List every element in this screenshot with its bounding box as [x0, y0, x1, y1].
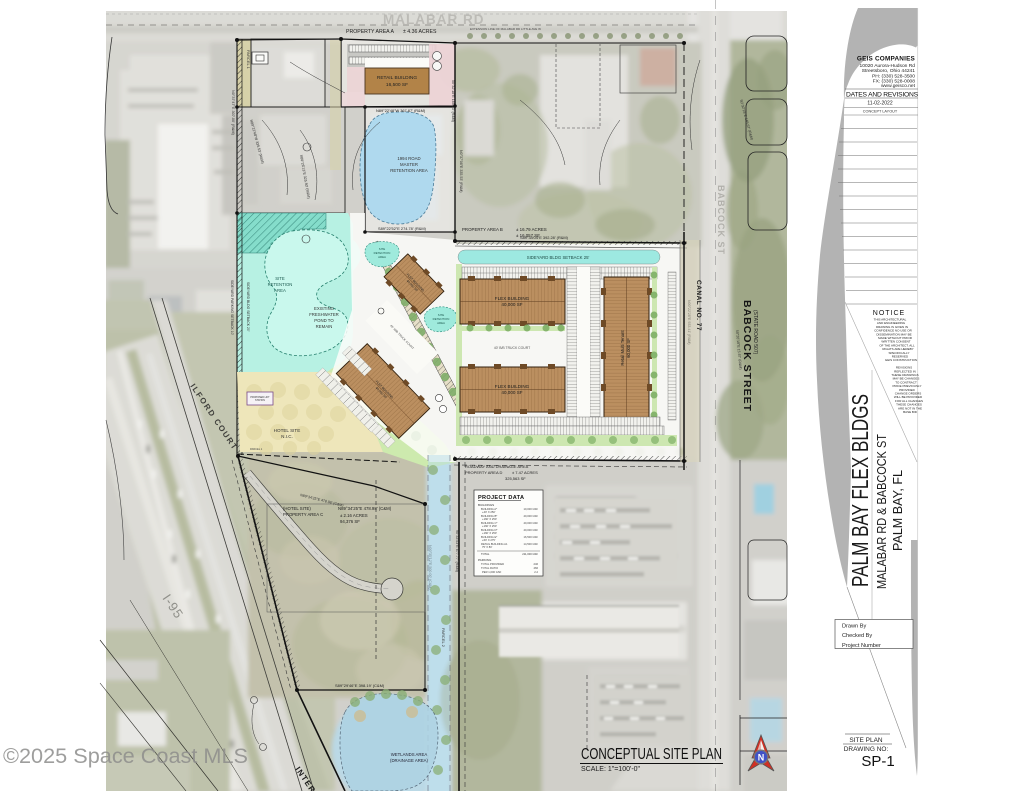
svg-text:SP-1: SP-1: [861, 753, 894, 770]
svg-text:PARCEL 1: PARCEL 1: [250, 447, 263, 451]
svg-text:RETAIL BUILDING: RETAIL BUILDING: [377, 75, 418, 81]
svg-text:HOTEL SITE: HOTEL SITE: [274, 428, 301, 433]
svg-text:40,000 GSF: 40,000 GSF: [524, 521, 539, 525]
svg-text:MALABAR RD & BABCOCK ST: MALABAR RD & BABCOCK ST: [874, 434, 889, 589]
svg-text:40,000 SF: 40,000 SF: [501, 390, 522, 395]
svg-text:± 16.79 ACRES: ± 16.79 ACRES: [516, 227, 547, 232]
svg-text:11-02-2022: 11-02-2022: [867, 101, 892, 107]
svg-text:Checked By: Checked By: [842, 633, 872, 639]
svg-text:+160' X 250': +160' X 250': [482, 517, 497, 521]
svg-text:SITE PLAN: SITE PLAN: [849, 737, 883, 744]
svg-text:PROPERTY AREA D: PROPERTY AREA D: [465, 470, 503, 475]
svg-text:BABCOCK STREET: BABCOCK STREET: [741, 300, 753, 412]
svg-text:CONCEPT LAYOUT: CONCEPT LAYOUT: [863, 110, 898, 114]
svg-text:94,376 SF: 94,376 SF: [340, 519, 360, 524]
svg-text:BABCOCK ST: BABCOCK ST: [716, 185, 726, 255]
svg-text:SCALE: 1"=100'-0": SCALE: 1"=100'-0": [581, 766, 641, 773]
svg-text:MASTER: MASTER: [400, 162, 418, 167]
svg-text:16,500 GSF: 16,500 GSF: [524, 535, 539, 539]
svg-text:CONCEPTUAL SITE PLAN: CONCEPTUAL SITE PLAN: [581, 746, 722, 763]
svg-text:60,000 SF: 60,000 SF: [626, 338, 631, 358]
svg-text:+60' X 275': +60' X 275': [482, 538, 496, 542]
svg-text:TOTAL RATIO: TOTAL RATIO: [481, 566, 498, 570]
svg-text:± 2.16 ACRES: ± 2.16 ACRES: [340, 513, 368, 518]
svg-text:90°33'53"E 677.77' (R&M): 90°33'53"E 677.77' (R&M): [455, 530, 459, 572]
svg-text:PARCEL 1: PARCEL 1: [246, 50, 251, 70]
svg-text:± 4.36 ACRES: ± 4.36 ACRES: [403, 29, 437, 35]
svg-text:PALM BAY FLEX BLDGS: PALM BAY FLEX BLDGS: [847, 394, 873, 587]
svg-text:N.I.C.: N.I.C.: [281, 434, 293, 439]
svg-text:246: 246: [534, 562, 539, 566]
svg-text:CANAL NO. 77: CANAL NO. 77: [695, 280, 702, 331]
svg-text:DATES AND REVISIONS: DATES AND REVISIONS: [846, 92, 919, 99]
svg-text:14,500 GSF: 14,500 GSF: [524, 542, 539, 546]
svg-text:BUILDINGS: BUILDINGS: [478, 503, 494, 507]
svg-text:AREA: AREA: [378, 255, 386, 259]
svg-text:REMAIN: REMAIN: [316, 324, 333, 329]
svg-text:40,000 SF: 40,000 SF: [501, 302, 522, 307]
svg-text:(STATE ROAD 507): (STATE ROAD 507): [752, 310, 758, 355]
svg-text:325,563 SF: 325,563 SF: [505, 476, 526, 481]
svg-text:(HOTEL SITE): (HOTEL SITE): [283, 506, 311, 511]
svg-text:N: N: [758, 753, 765, 763]
svg-text:N89°34'25"E 478.98' (C&M): N89°34'25"E 478.98' (C&M): [338, 506, 392, 511]
svg-text:Retail Multi Tenant: Retail Multi Tenant: [620, 330, 625, 366]
svg-text:NOTICE: NOTICE: [873, 310, 905, 317]
svg-text:N89°22'48"W 367.87' (R&M): N89°22'48"W 367.87' (R&M): [376, 108, 426, 113]
svg-text:RETENTION: RETENTION: [268, 282, 293, 287]
svg-text:POND TO: POND TO: [314, 318, 334, 323]
svg-text:FLEX BUILDING: FLEX BUILDING: [495, 384, 530, 389]
svg-text:PROPERTY AREA A: PROPERTY AREA A: [346, 29, 394, 35]
svg-text:TOTAL PROVIDED: TOTAL PROVIDED: [481, 562, 504, 566]
svg-text:Drawn By: Drawn By: [842, 624, 866, 630]
svg-text:SIDEYARD BLDG SETBACK 25': SIDEYARD BLDG SETBACK 25': [527, 255, 590, 260]
svg-text:RETENTION AREA: RETENTION AREA: [390, 168, 428, 173]
svg-text:S89°29'46"E 398.19' (C&M): S89°29'46"E 398.19' (C&M): [335, 683, 385, 688]
svg-text:SIDEYARD BLDG SETBACK 20': SIDEYARD BLDG SETBACK 20': [246, 282, 250, 332]
svg-text:+40' X 250': +40' X 250': [482, 510, 496, 514]
svg-text:N0°37'08"E 335.53' (R&M): N0°37'08"E 335.53' (R&M): [459, 150, 463, 192]
svg-text:(DRAINAGE AREA): (DRAINAGE AREA): [390, 758, 429, 763]
svg-text:16,500 SF: 16,500 SF: [386, 82, 408, 88]
svg-text:PARCEL 2: PARCEL 2: [441, 628, 446, 648]
svg-text:2.2: 2.2: [534, 570, 538, 574]
svg-text:S89°22'52"E 274.78' (R&M): S89°22'52"E 274.78' (R&M): [378, 226, 427, 231]
svg-text:STATION: STATION: [255, 399, 265, 402]
svg-text:TOTAL: TOTAL: [481, 552, 490, 556]
svg-text:± 7.47 ACRES: ± 7.47 ACRES: [512, 470, 538, 475]
svg-text:www.geisco.net: www.geisco.net: [881, 83, 916, 89]
svg-text:PROPERTY AREA B: PROPERTY AREA B: [462, 227, 503, 232]
svg-text:GEIS COMPANIES: GEIS COMPANIES: [857, 56, 916, 63]
svg-text:SIDEYARD PARKING SETBACK 10': SIDEYARD PARKING SETBACK 10': [230, 280, 234, 336]
svg-text:40' B/B TRUCK COURT: 40' B/B TRUCK COURT: [494, 346, 530, 350]
svg-text:10,000 GSF: 10,000 GSF: [524, 507, 539, 511]
svg-text:± 16,057 SF: ± 16,057 SF: [516, 233, 540, 238]
svg-text:PROPERTY AREA C: PROPERTY AREA C: [283, 512, 323, 517]
svg-text:WETLANDS AREA: WETLANDS AREA: [391, 752, 428, 757]
svg-text:SITE: SITE: [275, 276, 285, 281]
svg-text:PER 1,000 GSF: PER 1,000 GSF: [482, 570, 502, 574]
svg-text:DRAWING NO:: DRAWING NO:: [844, 746, 889, 753]
svg-text:AREA: AREA: [274, 288, 286, 293]
svg-text:N0°37'47"E 307.00' (R&M): N0°37'47"E 307.00' (R&M): [231, 90, 235, 136]
svg-text:PROJECT DATA: PROJECT DATA: [478, 495, 524, 501]
svg-text:75' X 80': 75' X 80': [482, 545, 493, 549]
svg-text:GEIS CONSTRUCTION: GEIS CONSTRUCTION: [885, 358, 917, 362]
svg-text:+160' X 250': +160' X 250': [482, 524, 497, 528]
svg-text:Project Number: Project Number: [842, 643, 881, 649]
svg-text:211,000 GSF: 211,000 GSF: [522, 552, 538, 556]
svg-text:40,000 GSF: 40,000 GSF: [524, 528, 539, 532]
svg-text:AREA: AREA: [437, 321, 445, 325]
svg-text:Streetsboro, Ohio 44241: Streetsboro, Ohio 44241: [862, 68, 916, 74]
svg-text:ROADWAY AND DRAINAGE AREA: ROADWAY AND DRAINAGE AREA: [465, 464, 529, 469]
svg-text:©2025 Space Coast MLS: ©2025 Space Coast MLS: [3, 744, 248, 768]
svg-text:1994 ROAD: 1994 ROAD: [397, 156, 420, 161]
svg-text:FLEX BUILDING: FLEX BUILDING: [495, 296, 530, 301]
svg-text:EXISTING: EXISTING: [314, 306, 335, 311]
svg-text:+160' X 250': +160' X 250': [482, 531, 497, 535]
svg-text:40,000 GSF: 40,000 GSF: [524, 514, 539, 518]
svg-text:466: 466: [534, 566, 539, 570]
svg-text:FRESHWATER: FRESHWATER: [309, 312, 339, 317]
svg-text:PARKING: PARKING: [478, 558, 492, 562]
svg-text:PALM BAY, FL: PALM BAY, FL: [890, 470, 905, 551]
svg-text:BASE BID: BASE BID: [903, 410, 918, 414]
svg-text:EXTENSION LINE OF MALABAR RD L: EXTENSION LINE OF MALABAR RD LITTLE AVE …: [470, 27, 541, 31]
